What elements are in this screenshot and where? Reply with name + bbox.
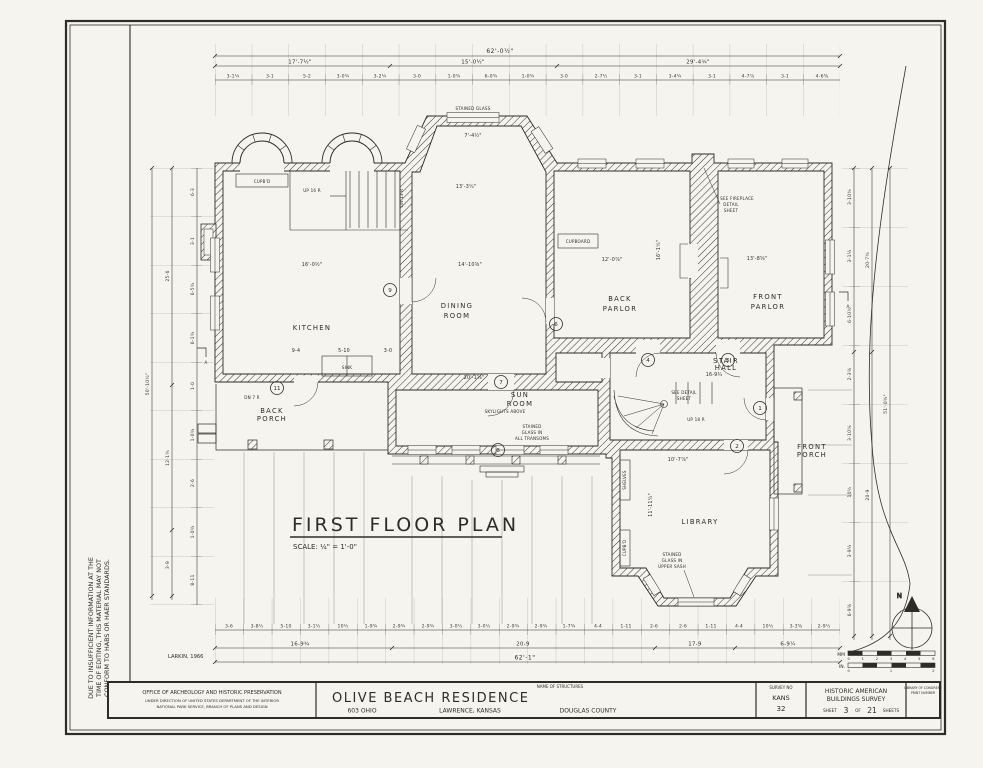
dim-label: 3-1½ [308, 623, 321, 630]
disclaimer-line: TIME OF EDITING, THIS MATERIAL MAY NOT [95, 559, 103, 698]
dim-label: 3-9¼ [847, 544, 853, 557]
dim-label: 6-0¾ [485, 74, 498, 80]
office-line: NATIONAL PARK SERVICE, BRANCH OF PLANS A… [156, 704, 267, 709]
dim-label: 7'-4½" [464, 132, 481, 139]
room-label-front-porch: FRONT [797, 443, 827, 451]
dimension-lines [150, 54, 892, 664]
dim-label: 29'-4¾" [686, 60, 710, 66]
note-upper-sash: STAINED [663, 552, 682, 557]
dim-label: 14'-10⅝" [458, 262, 482, 268]
dim-label: 6-9⅝ [847, 603, 853, 616]
dim-label: 11'-11¼" [648, 493, 654, 517]
note-skylights: SKYLIGHTS ABOVE [485, 409, 526, 414]
dim-label: 1-7¾ [563, 624, 576, 630]
habs-sheet: DUE TO INSUFFICIENT INFORMATION AT THE T… [0, 0, 983, 768]
dim-label: 17-9 [688, 642, 702, 648]
note-stained-glass: STAINED GLASS [455, 106, 490, 111]
room-label-front-porch: PORCH [797, 451, 827, 459]
marker-number: 7 [499, 380, 503, 386]
dim-label: 2-6 [190, 479, 196, 487]
dim-label: 16'-1¼" [656, 240, 662, 260]
dim-label: 4-4 [594, 624, 602, 630]
dim-label: 1-9¾ [365, 624, 378, 630]
dim-label: 2-9¾ [507, 624, 520, 630]
dim-label: 1-11 [705, 624, 716, 630]
room-labels: KITCHEN DINING ROOM BACK PARLOR FRONT PA… [257, 293, 827, 526]
plan-title: FIRST FLOOR PLAN [292, 514, 519, 536]
marker-number: 2 [735, 444, 739, 450]
note-cupboard: CUPB'D [254, 179, 271, 184]
bottom-overall-dimension: 62'-1" [514, 655, 535, 662]
dim-label: 62'-0½" [486, 48, 513, 55]
room-label-front-parlor: FRONT [753, 293, 783, 301]
dim-label: 1-0 [190, 382, 196, 390]
floor-plan-drawing: DUE TO INSUFFICIENT INFORMATION AT THE T… [0, 0, 983, 768]
dim-label: 20-7¾ [865, 252, 871, 268]
dim-label: 16'-0½" [302, 261, 322, 268]
dim-label: 5-2 [303, 74, 311, 80]
dim-label: 20'-1⅝" [464, 375, 484, 381]
dim-label: 10'-7⅞" [668, 457, 688, 463]
survey-no-label: SURVEY NO [769, 685, 792, 690]
marker-number: 8 [496, 448, 500, 454]
scale-bar-imperial-ticks: 0 1 2 [848, 669, 935, 673]
dim-label: 3-2¼ [374, 74, 387, 80]
dim-label: 12-1¾ [165, 450, 171, 466]
disclaimer-line: DUE TO INSUFFICIENT INFORMATION AT THE [87, 557, 95, 699]
dim-label: 2-9¾ [393, 624, 406, 630]
dim-label: 1-0¾ [190, 428, 196, 441]
dim-label: 3-0¾ [337, 74, 350, 80]
dim-label: 3-0½ [478, 623, 491, 630]
room-label-dining: ROOM [444, 312, 471, 320]
note-sink: SINK [342, 365, 352, 370]
dim-label: 16-9¾ [706, 372, 723, 378]
dim-label: 51'-0¾" [883, 394, 889, 414]
structure-city: LAWRENCE, KANSAS [439, 708, 501, 715]
dim-label: 12'-0⅞" [602, 257, 622, 263]
room-label-dining: DINING [441, 302, 473, 310]
marker-number: 4 [646, 358, 650, 364]
dim-label: 3-0 [413, 74, 421, 80]
note-fireplace: SEE FIREPLACE [720, 196, 754, 201]
loc-line: LIBRARY OF CONGRESS [904, 686, 941, 690]
note-stair-detail: SHEET [677, 396, 692, 401]
dim-label: 1-0¾ [190, 525, 196, 538]
title-block: OFFICE OF ARCHEOLOGY AND HISTORIC PRESER… [108, 682, 942, 718]
dim-label: 3-1¼ [227, 74, 240, 80]
dim-label: 20-9 [865, 489, 871, 500]
loc-line: PRINT NUMBER [911, 691, 936, 695]
dim-label: 3-6 [225, 624, 233, 630]
dim-label: 3-1 [634, 74, 642, 80]
dim-label: 3-0 [560, 74, 568, 80]
scale-bar-metric-label: MM [837, 652, 845, 658]
dim-label: 5-10 [338, 348, 350, 354]
note-transoms: ALL TRANSOMS [515, 436, 549, 441]
dim-label: 4-4 [735, 624, 743, 630]
dim-label: 2-3⅝ [847, 367, 853, 380]
structure-address: 603 OHIO [347, 708, 376, 715]
note-shelves: SHELVES [622, 470, 627, 490]
structure-name: OLIVE BEACH RESIDENCE [332, 691, 529, 706]
dim-label: 1-11 [620, 624, 631, 630]
room-label-kitchen: KITCHEN [293, 324, 332, 332]
dim-label: 3-1¼ [847, 249, 853, 262]
note-upper-sash: UPPER SASH [658, 564, 686, 569]
dim-label: 5-10 [280, 624, 291, 630]
dim-label: 10½ [846, 486, 853, 497]
dim-label: 3-9 [165, 561, 171, 569]
section-marker-a: A [204, 360, 207, 365]
sheet-number: 3 [844, 706, 849, 715]
dim-label: 2-9¾ [535, 624, 548, 630]
marker-number: 1 [758, 406, 762, 412]
note-fireplace: DETAIL [723, 202, 739, 207]
sheet-label: SHEET [823, 708, 837, 713]
marker-number: 6 [554, 322, 558, 328]
top-dimensions: 62'-0½" [486, 48, 513, 55]
scale-bar-metric-ticks: 0 1 2 3 4 5 6 [848, 657, 936, 661]
survey-number: 32 [777, 705, 786, 713]
note-dn7: DN 7 R [244, 395, 259, 400]
dim-label: 3-4¼ [669, 74, 682, 80]
room-label-stair-hall: HALL [715, 364, 738, 372]
annotations: STAINED GLASS SKYLIGHTS ABOVE STAINED GL… [204, 106, 849, 569]
sheets-label: SHEETS [883, 708, 900, 713]
section-marker-a: A [846, 304, 849, 309]
room-label-back-parlor: PARLOR [603, 305, 637, 313]
room-label-front-parlor: PARLOR [751, 303, 785, 311]
dim-label: 6-3 [190, 188, 196, 196]
dim-label: 4-7⅞ [742, 74, 755, 80]
marker-number: 11 [273, 386, 281, 392]
dim-label: 9-4 [292, 348, 300, 354]
office-line: OFFICE OF ARCHEOLOGY AND HISTORIC PRESER… [142, 690, 281, 696]
of-label: OF [855, 708, 861, 713]
plan-scale: SCALE: ¼" = 1'-0" [293, 543, 357, 551]
note-cupboard: CUPBOARD [566, 239, 591, 244]
note-up16: UP 16 R [303, 188, 321, 193]
dim-label: 4-6⅝ [816, 74, 829, 80]
dim-label: 2-7½ [595, 73, 608, 80]
dim-label: 2-6 [679, 624, 687, 630]
office-line: UNDER DIRECTION OF UNITED STATES DEPARTM… [145, 698, 279, 703]
disclaimer-line: CONFORM TO HABS OR HAER STANDARDS. [103, 559, 111, 697]
dim-label: 1-0¾ [522, 74, 535, 80]
delineator-credit: LARKIN, 1966 [168, 654, 203, 660]
dim-label: 8-11 [190, 574, 196, 585]
dim-label: 3-8½ [251, 623, 264, 630]
dim-label: 3-10¾ [847, 189, 853, 205]
dim-label: 3-1 [266, 74, 274, 80]
dim-label: 50'-10½" [144, 373, 151, 396]
dim-label: 62'-1" [514, 655, 535, 662]
north-label: N [897, 592, 902, 600]
sheet-total: 21 [867, 706, 877, 715]
note-up18: UP 18 R [687, 417, 705, 422]
note-upper-sash: GLASS IN [662, 558, 683, 563]
room-label-back-porch: PORCH [257, 415, 287, 423]
room-label-sun-room: SUN [511, 391, 529, 399]
dim-label: 2-9½ [818, 623, 831, 630]
dim-label: 13'-8⅝" [747, 256, 767, 262]
survey-state: KANS [772, 694, 790, 702]
note-transoms: STAINED [523, 424, 542, 429]
dim-label: 6-5¾ [190, 282, 196, 295]
marker-number: 5 [726, 358, 730, 364]
dim-label: 10½ [763, 623, 774, 630]
dim-label: 6-9¼ [780, 642, 796, 648]
dim-label: 1-0¾ [448, 74, 461, 80]
disclaimer-stamp: DUE TO INSUFFICIENT INFORMATION AT THE T… [87, 557, 111, 699]
room-label-back-porch: BACK [260, 407, 284, 415]
dim-label: 6-10½ [846, 307, 853, 323]
scale-bar-imperial-label: IN. [839, 664, 845, 670]
dim-label: 25-6 [165, 270, 171, 281]
back-stairs [290, 171, 408, 230]
terrace-outline [392, 456, 600, 477]
habs-line: BUILDINGS SURVEY [827, 696, 886, 703]
note-fireplace: SHEET [724, 208, 739, 213]
dim-label: 3-10⅝ [847, 425, 853, 441]
dim-label: 3-1 [190, 237, 196, 245]
structure-county: DOUGLAS COUNTY [560, 708, 617, 715]
main-stair [614, 382, 712, 436]
dim-label: 16-9¾ [291, 642, 310, 648]
note-cupboard: CUPB'D [622, 540, 627, 557]
dim-label: 2-9¾ [422, 624, 435, 630]
note-stair-detail: SEE DETAIL [671, 390, 697, 395]
dim-label: 13'-3¼" [456, 184, 476, 190]
room-label-sun-room: ROOM [507, 400, 534, 408]
scale-bars: MM 0 1 2 3 4 5 6 IN. 0 1 2 [837, 651, 935, 673]
dim-label: 2-6 [650, 624, 658, 630]
back-porch-outline [198, 384, 388, 450]
dim-label: 3-1 [781, 74, 789, 80]
dim-label: 3-0 [384, 348, 392, 354]
dim-label: 3-0½ [450, 623, 463, 630]
note-dn13: DN 13 R [399, 189, 404, 207]
marker-number: 9 [388, 288, 392, 294]
habs-line: HISTORIC AMERICAN [825, 688, 887, 695]
dim-label: 20-9 [516, 642, 530, 648]
structure-name-label: NAME OF STRUCTURES [537, 684, 584, 689]
dim-label: 3-3⅝ [790, 624, 803, 630]
dim-label: 3-1 [708, 74, 716, 80]
room-label-back-parlor: BACK [608, 295, 632, 303]
note-transoms: GLASS IN [522, 430, 543, 435]
room-label-library: LIBRARY [681, 518, 718, 526]
dim-label: 6-1¾ [190, 331, 196, 344]
dim-label: 17'-7½" [288, 59, 312, 66]
dim-label: 10½ [338, 623, 349, 630]
dim-label: 15'-0½" [461, 59, 485, 66]
